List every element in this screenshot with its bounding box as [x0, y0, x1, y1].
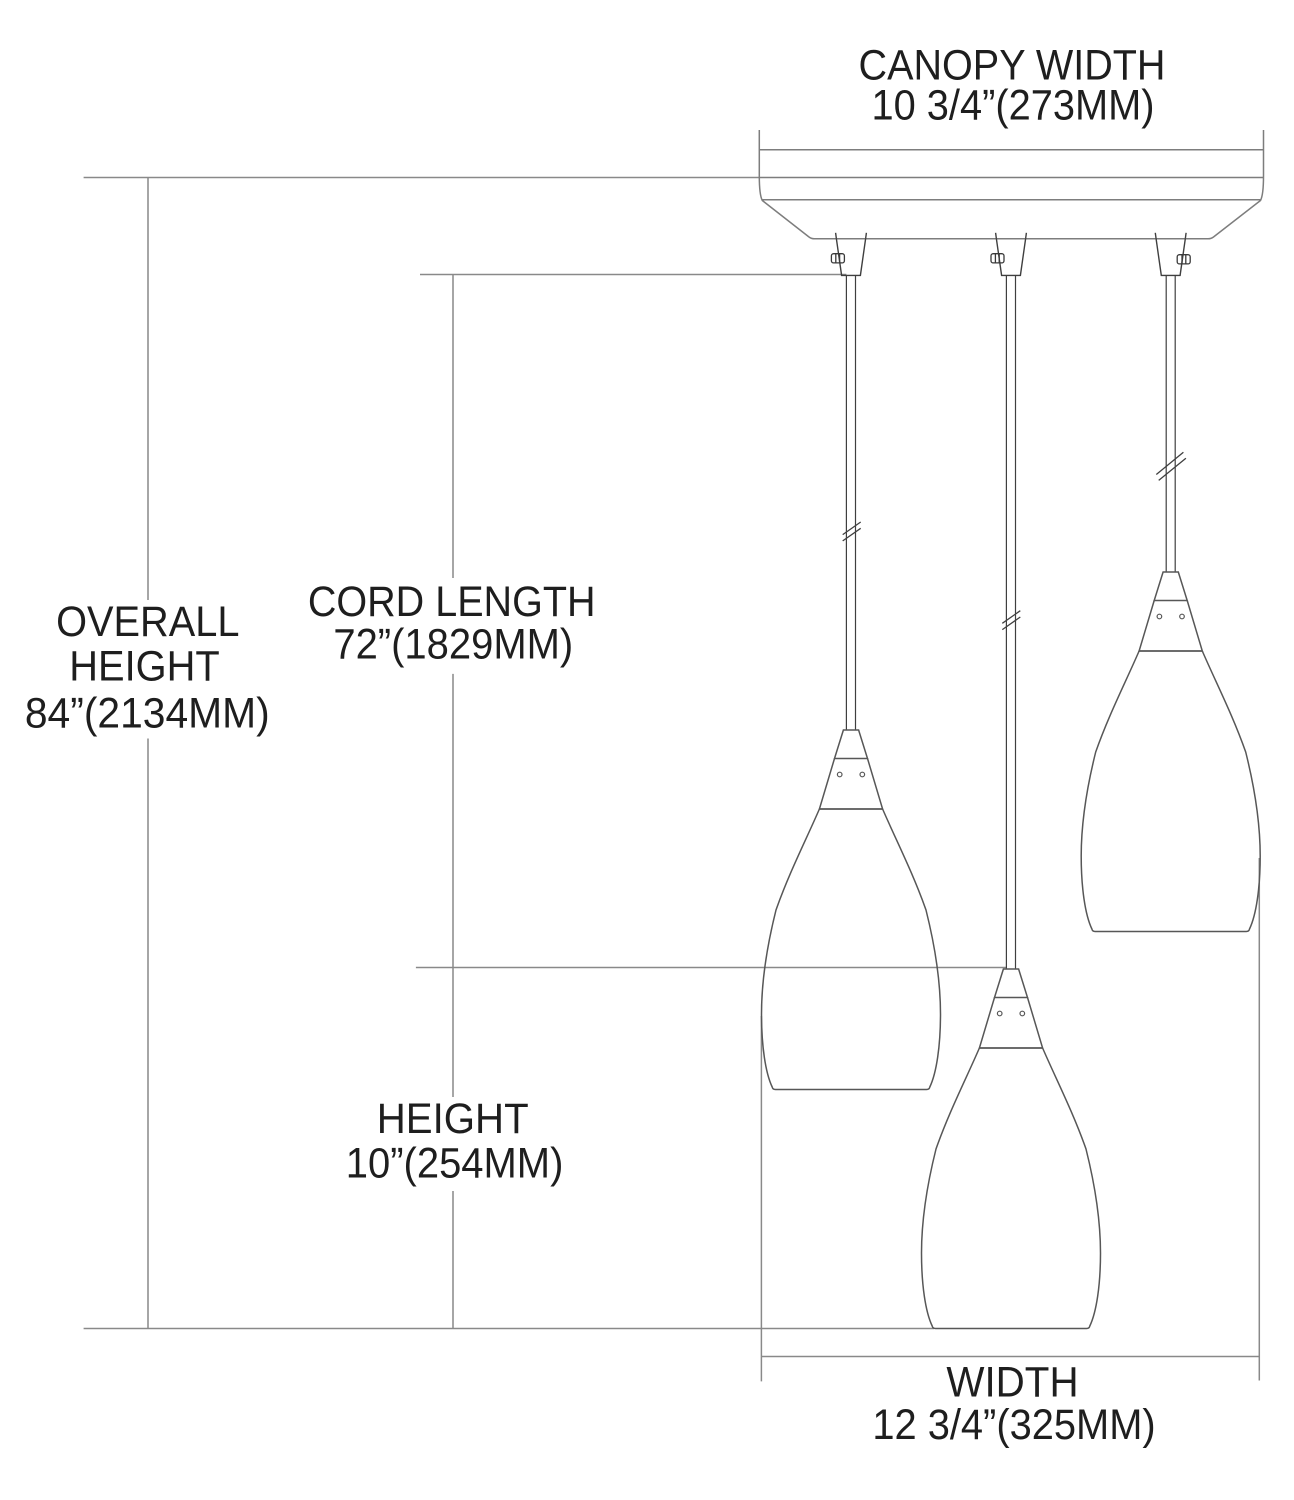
svg-text:10 3/4”(273MM): 10 3/4”(273MM) — [872, 82, 1155, 130]
svg-text:72”(1829MM): 72”(1829MM) — [333, 621, 573, 669]
svg-text:OVERALL: OVERALL — [56, 598, 239, 646]
svg-text:HEIGHT: HEIGHT — [69, 643, 220, 691]
svg-text:12 3/4”(325MM): 12 3/4”(325MM) — [872, 1401, 1155, 1449]
svg-text:WIDTH: WIDTH — [946, 1358, 1078, 1406]
svg-text:HEIGHT: HEIGHT — [377, 1095, 529, 1143]
svg-text:10”(254MM): 10”(254MM) — [346, 1139, 564, 1187]
svg-text:84”(2134MM): 84”(2134MM) — [25, 690, 270, 738]
svg-text:CORD LENGTH: CORD LENGTH — [308, 578, 596, 626]
